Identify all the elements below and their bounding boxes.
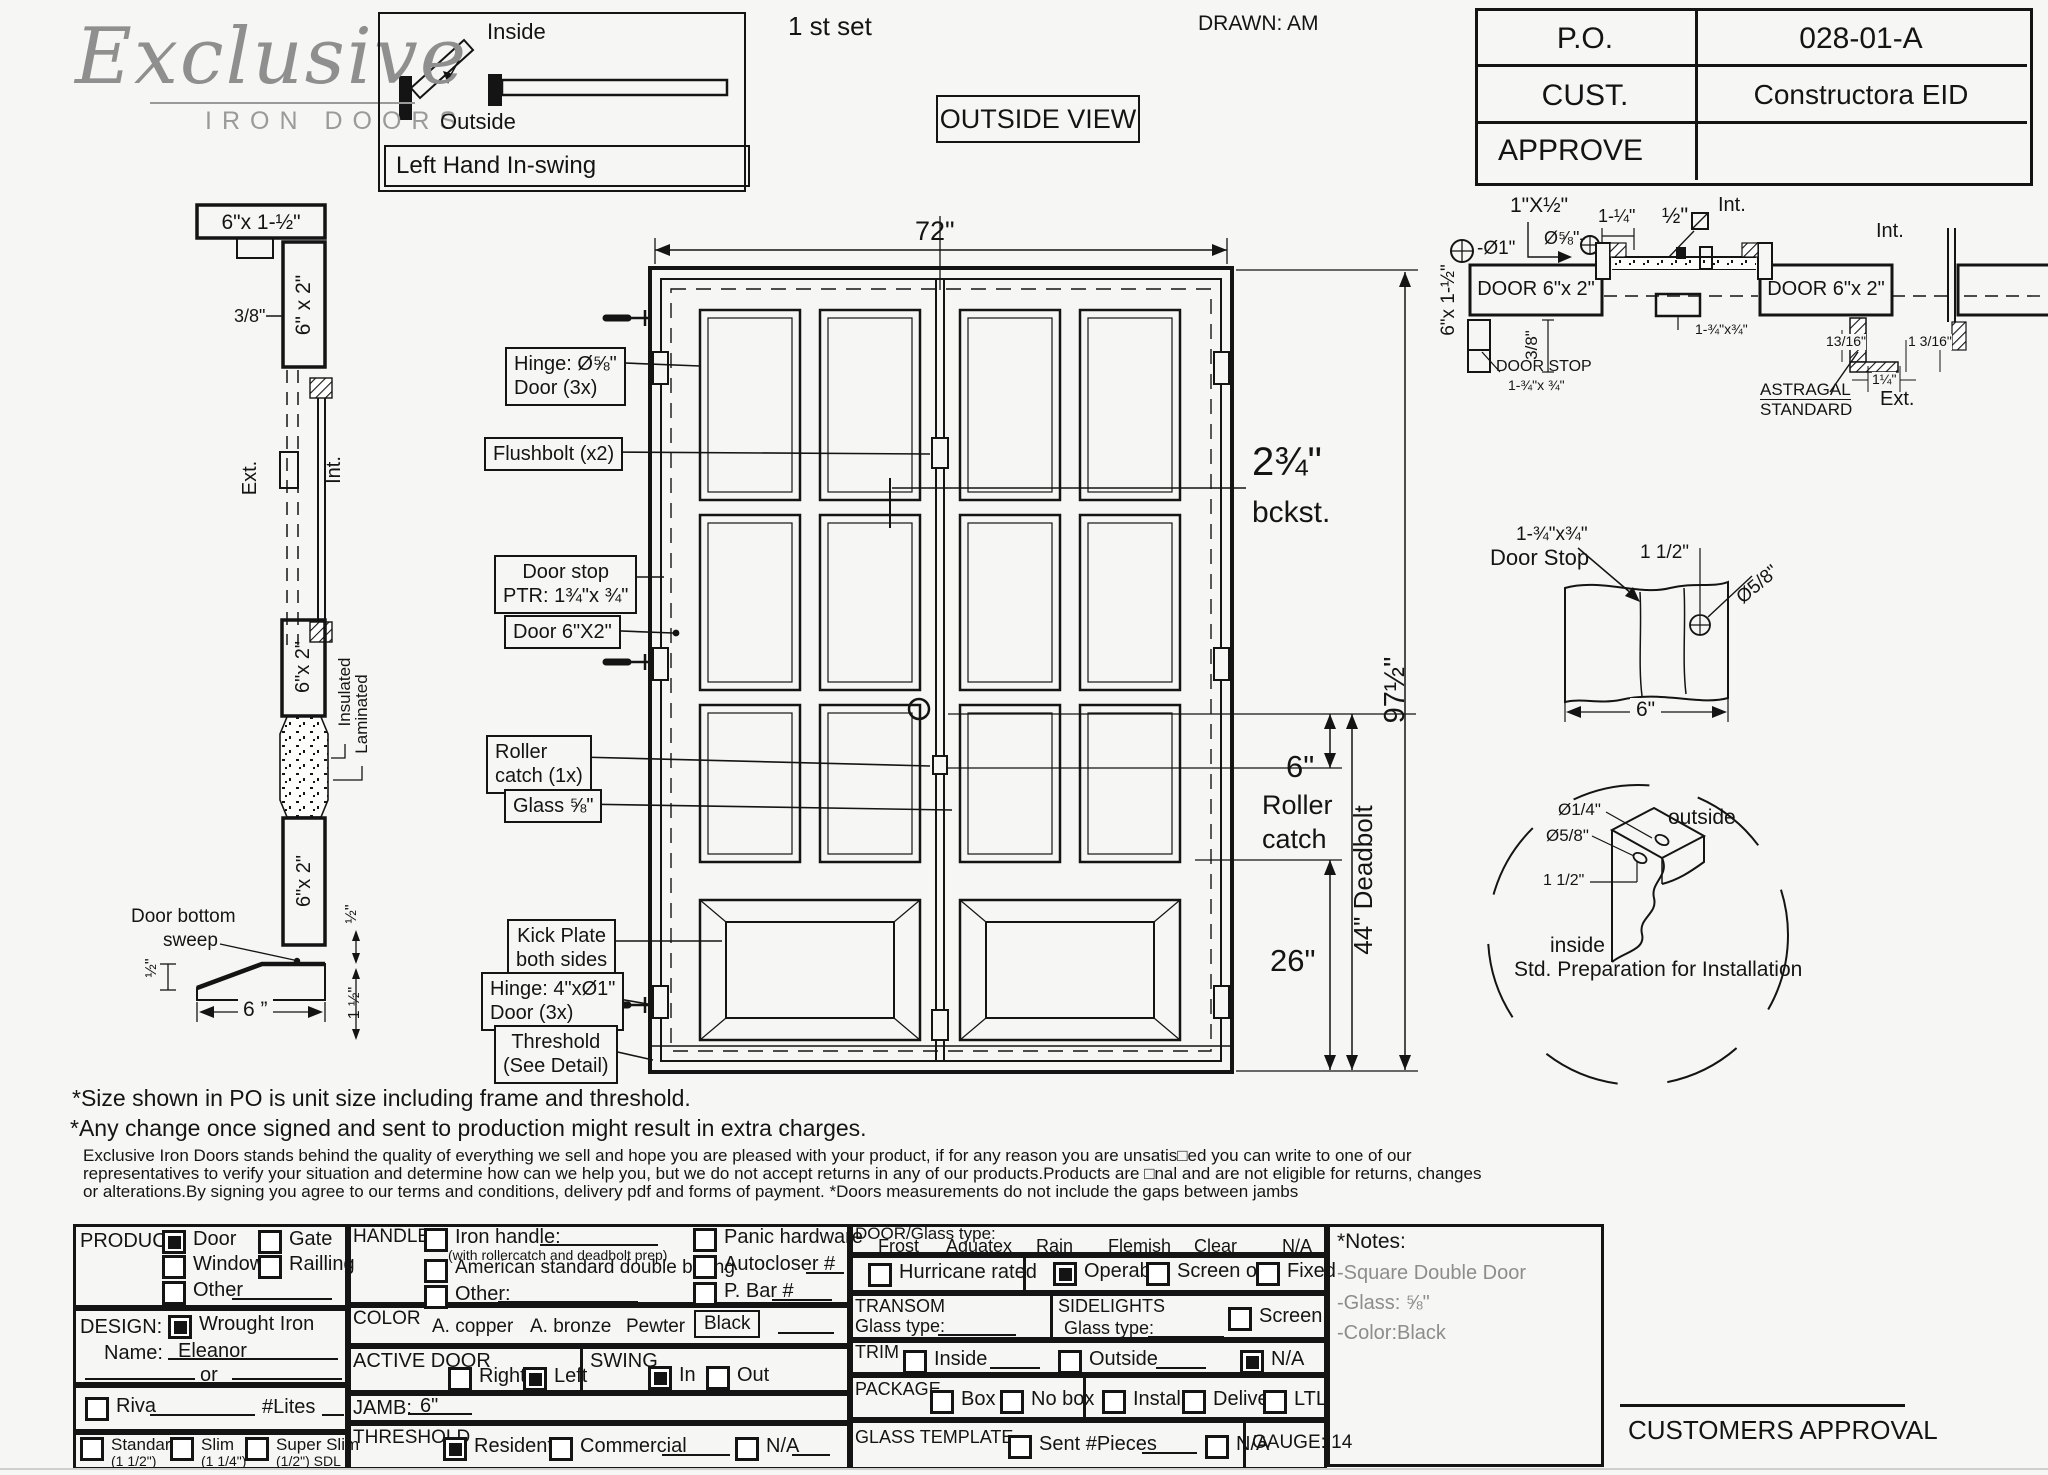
hsec-jamb-dim: 6"x 1-½" [1432,245,1466,355]
sweep-label-1: Door bottom [131,906,236,927]
customers-approval-label: CUSTOMERS APPROVAL [1628,1416,1938,1445]
int-label: Int. [319,440,349,500]
checkbox-box[interactable] [424,1228,448,1252]
po-value: 028-01-A [1695,22,2027,56]
approval-signature-line[interactable] [1620,1404,1905,1407]
checkbox-box[interactable] [424,1285,448,1309]
jamb-size-dim: 6" x 2" [285,245,323,365]
lites-blank[interactable] [322,1398,344,1416]
checkbox-box[interactable] [162,1281,186,1305]
checkbox-package-nobox[interactable]: No box [1000,1389,1094,1414]
checkbox-fixed[interactable]: Fixed [1256,1261,1336,1286]
hinge-bottom-line1: Hinge: 4"xØ1" [490,977,615,1001]
hsec-114b-dim: 1¼" [1872,372,1896,388]
gauge-label: GAUGE: 14 [1252,1432,1352,1453]
checkbox-label: Screen [1259,1306,1322,1327]
checkbox-box[interactable] [448,1367,472,1391]
checkbox-trim-outside[interactable]: Outside [1058,1349,1158,1374]
color-blank[interactable] [778,1316,834,1334]
checkbox-box[interactable] [1102,1390,1126,1414]
roller-dim: 6" [1286,750,1314,785]
trim-inside-blank[interactable] [990,1351,1040,1369]
hsec-door-left: DOOR 6"x 2" [1470,278,1602,300]
checkbox-american-boring[interactable]: American standard double boring [424,1258,735,1283]
checkbox-threshold-na[interactable]: N/A [735,1436,799,1461]
checkbox-trim-inside[interactable]: Inside [903,1349,987,1374]
handle-other-blank[interactable] [498,1285,638,1303]
prep-112: 1 1/2" [1543,872,1584,890]
checkbox-panic-hardware[interactable]: Panic hardware [693,1227,863,1252]
checkbox-label: No box [1031,1389,1094,1410]
stop-detail-width: 6" [1630,698,1661,722]
checkbox-label: Right [479,1366,526,1387]
hinge-bottom-line2: Door (3x) [490,1001,615,1025]
checkbox-label: N/A [1271,1349,1304,1370]
note-line-3: Exclusive Iron Doors stands behind the q… [83,1146,1412,1165]
or-line-left [85,1378,195,1380]
drawn-by-label: DRAWN: AM [1198,12,1319,36]
design-name-label: Name: [104,1342,163,1364]
sidelights-glass-label: Glass type: [1064,1318,1154,1338]
astragal-label-1: ASTRAGAL [1760,380,1851,400]
cust-label: CUST. [1475,79,1695,113]
height-dim: 97½" [1378,635,1412,745]
hinge-bottom-callout: Hinge: 4"xØ1" Door (3x) [481,972,624,1031]
sweep-label-2: sweep [163,930,218,951]
iron-handle-blank[interactable] [540,1228,658,1246]
threshold-na-blank[interactable] [792,1438,830,1456]
prep-dia14: Ø1/4" [1558,800,1601,819]
backset-word: bckst. [1252,496,1330,530]
checkbox-box[interactable] [1240,1350,1264,1374]
checkbox-label: Super Slim(1/2") SDL [276,1436,359,1469]
checkbox-box[interactable] [1205,1435,1229,1459]
checkbox-box[interactable] [245,1437,269,1461]
swing-outside-label: Outside [440,110,516,135]
kick-plate-callout: Kick Plate both sides [507,919,616,978]
color-label: COLOR [353,1308,421,1329]
glasstype-rain[interactable]: Rain [1036,1236,1073,1256]
jamb-label: JAMB: [353,1397,412,1419]
checkbox-box[interactable] [170,1437,194,1461]
jamb-blank[interactable] [408,1397,472,1415]
trim-outside-blank[interactable] [1156,1351,1206,1369]
package-label: PACKAGE [855,1379,941,1399]
checkbox-box[interactable] [258,1255,282,1279]
checkbox-swing-in[interactable]: In [648,1365,696,1390]
hsec-dia58-dim: Ø⅝"- [1544,228,1585,248]
notes-box [1327,1224,1604,1467]
sidelights-glass-blank[interactable] [1148,1320,1224,1338]
checkbox-hurricane[interactable]: Hurricane rated [868,1262,1037,1287]
checkbox-box[interactable] [1000,1390,1024,1414]
checkbox-box[interactable] [903,1350,927,1374]
prep-inside: inside [1550,934,1605,958]
checkbox-label: Hurricane rated [899,1262,1037,1283]
checkbox-label: Sent #Pieces [1039,1434,1157,1455]
kick-line2: both sides [516,948,607,972]
glass-callout: Glass ⅝" [504,789,602,823]
kick-dim: 26" [1270,944,1316,979]
door-stop-line1: Door stop [503,560,628,584]
checkbox-box[interactable] [735,1437,759,1461]
roller-line1: Roller [495,740,583,764]
checkbox-box[interactable] [648,1366,672,1390]
notes-title: *Notes: [1337,1230,1406,1254]
checkbox-box[interactable] [868,1263,892,1287]
checkbox-box[interactable] [80,1437,104,1461]
transom-glass-label: Glass type: [855,1316,945,1336]
checkbox-label: Railling [289,1254,355,1275]
checkbox-box[interactable] [168,1315,192,1339]
hinge-top-line1: Hinge: Ø⅝" [514,352,617,376]
checkbox-product-gate[interactable]: Gate [258,1229,332,1254]
sidelights-label: SIDELIGHTS [1058,1296,1165,1316]
door-stop-callout: Door stop PTR: 1¾"x ¾" [494,555,637,614]
swing-inside-label: Inside [487,20,546,45]
threshold-line2: (See Detail) [503,1054,609,1078]
po-table-line [1475,121,2027,124]
checkbox-box[interactable] [1058,1350,1082,1374]
note-line-5: or alterations.By signing you agree to o… [83,1182,1298,1201]
checkbox-box[interactable] [424,1259,448,1283]
hinge-top-line2: Door (3x) [514,376,617,400]
checkbox-product-railling[interactable]: Railling [258,1254,355,1279]
hsec-int-2: Int. [1876,220,1904,242]
glass-template-label: GLASS TEMPLATE [855,1427,1013,1447]
roller-line2: catch (1x) [495,764,583,788]
transom-glass-blank[interactable] [938,1318,1016,1336]
checkbox-active-right[interactable]: Right [448,1366,526,1391]
checkbox-label: Screen or [1177,1261,1264,1282]
jamb-top-dim: 6"x 1-½" [197,211,325,235]
prep-outside: outside [1668,806,1736,830]
checkbox-super-slim[interactable]: Super Slim(1/2") SDL [245,1436,359,1469]
threshold-height-dim: 1 ½" [343,973,367,1033]
lites-label: #Lites [262,1396,315,1418]
hsec-12-dim: ½" [1662,204,1688,229]
transom-label: TRANSOM [855,1296,945,1316]
checkbox-swing-out[interactable]: Out [706,1365,769,1390]
checkbox-box[interactable] [693,1282,717,1306]
stop-detail-112: 1 1/2" [1640,542,1689,563]
checkbox-label: Door [193,1229,236,1250]
hsec-mid-dim: 1-¾"x¾" [1695,322,1748,338]
checkbox-package-box[interactable]: Box [930,1389,995,1414]
checkbox-box[interactable] [1228,1307,1252,1331]
prep-dia58: Ø5/8" [1546,826,1589,845]
kick-line1: Kick Plate [516,924,607,948]
riva-blank[interactable] [150,1398,255,1416]
checkbox-label: Window [193,1254,264,1275]
checkbox-label: Gate [289,1229,332,1250]
p-bar-blank[interactable] [772,1283,832,1301]
checkbox-active-left[interactable]: Left [523,1366,587,1391]
checkbox-box[interactable] [1053,1262,1077,1286]
set-label: 1 st set [788,12,872,41]
frame-sub: (1/2") SDL [276,1454,359,1469]
checkbox-box[interactable] [1146,1262,1170,1286]
stop-detail-dim: 1-¾"x¾" [1516,524,1588,545]
checkbox-label: Install [1133,1389,1185,1410]
flushbolt-callout: Flushbolt (x2) [484,437,623,471]
glasstype-flemish[interactable]: Flemish [1108,1236,1171,1256]
checkbox-sidelights-screen[interactable]: Screen [1228,1306,1322,1331]
hsec-doorstop-label: DOOR STOP [1496,358,1592,376]
color-copper[interactable]: A. copper [432,1316,513,1337]
checkbox-label: Out [737,1365,769,1386]
checkbox-standard[interactable]: Standard(1 1/2") [80,1436,180,1469]
hinge-top-callout: Hinge: Ø⅝" Door (3x) [505,347,626,406]
checkbox-label: Panic hardware [724,1227,863,1248]
notes-item-2: -Glass: ⅝" [1337,1292,1430,1314]
laminated-label: Laminated [351,664,373,764]
hsec-114-dim: 1-¼" [1598,206,1635,226]
checkbox-box[interactable] [1008,1435,1032,1459]
hsec-int-1: Int. [1718,194,1746,216]
checkbox-screen-or[interactable]: Screen or [1146,1261,1264,1286]
design-name-blank[interactable] [168,1342,338,1360]
checkbox-trim-na[interactable]: N/A [1240,1349,1304,1374]
checkbox-box[interactable] [693,1255,717,1279]
hsec-doorstop-dim: 1-¾"x ¾" [1508,378,1565,394]
jamb-gap-dim: 3/8" [234,306,265,326]
deadbolt-dim: 44" Deadbolt [1345,790,1381,970]
or-line-right [232,1378,342,1380]
product-other-blank[interactable] [232,1282,332,1300]
checkbox-product-other[interactable]: Other [162,1280,243,1305]
checkbox-box[interactable] [162,1230,186,1254]
color-pewter[interactable]: Pewter [626,1316,685,1337]
backset-dim: 2¾" [1252,440,1322,485]
hsec-1x12-dim: 1"X½" [1510,194,1568,218]
note-line-4: representatives to verify your situation… [83,1164,1481,1183]
sweep-half-dim-b: ½" [340,894,364,934]
checkbox-box[interactable] [85,1397,109,1421]
trim-label: TRIM [855,1342,899,1362]
threshold-callout: Threshold (See Detail) [494,1025,618,1084]
glasstype-aquatex[interactable]: Aquatex [946,1236,1012,1256]
color-bronze[interactable]: A. bronze [530,1316,611,1337]
checkbox-sent-pieces[interactable]: Sent #Pieces [1008,1434,1157,1459]
installation-prep-drawing [1488,785,1788,1085]
notes-item-3: -Color:Black [1337,1322,1446,1344]
approve-label: APPROVE [1498,134,1643,168]
checkbox-label: Box [961,1389,995,1410]
roller-catch-callout: Roller catch (1x) [486,735,592,794]
checkbox-label: Outside [1089,1349,1158,1370]
swing-caption: Left Hand In-swing [384,145,750,187]
prep-caption: Std. Preparation for Installation [1514,958,1802,982]
stop-detail-title: Door Stop [1490,546,1589,571]
checkbox-box[interactable] [706,1366,730,1390]
sweep-half-dim: ½" [140,948,164,988]
transom-divider [1050,1293,1053,1340]
frame-label: Slim [201,1435,234,1454]
door-dim-a: 6"x 2" [284,617,322,717]
checkbox-label: Inside [934,1349,987,1370]
hsec-1316-b: 1 3/16" [1908,334,1952,350]
outside-view-label: OUTSIDE VIEW [936,95,1140,143]
handle-label: HANDLE [353,1226,430,1247]
checkbox-package-ltl[interactable]: LTL [1263,1389,1327,1414]
cust-value: Constructora EID [1695,79,2027,110]
threshold-line1: Threshold [503,1030,609,1054]
checkbox-label: In [679,1365,696,1386]
ext-label: Ext. [235,448,265,508]
color-selected[interactable]: Black [694,1310,760,1338]
threshold-width-dim: 6 ” [238,998,273,1022]
frame-sub: (1 1/4") [201,1454,246,1469]
width-dim: 72" [915,216,955,246]
checkbox-product-window[interactable]: Window [162,1254,264,1279]
door-size-callout: Door 6"X2" [504,615,621,649]
roller-word-2: catch [1262,824,1327,854]
checkbox-box[interactable] [162,1255,186,1279]
astragal-label-2: STANDARD [1760,400,1852,419]
glasstype-frost[interactable]: Frost [878,1236,919,1256]
notes-item-1: -Square Double Door [1337,1262,1526,1284]
roller-word-1: Roller [1262,790,1333,820]
door-stop-detail-drawing [1565,548,1752,722]
checkbox-box[interactable] [1263,1390,1287,1414]
glasstype-na[interactable]: N/A [1282,1236,1312,1256]
page-bottom-edge [0,1468,2048,1470]
sent-pieces-blank[interactable] [1142,1436,1197,1454]
design-label: DESIGN: [80,1316,162,1338]
door-shop-drawing: Exclusive IRON DOORS Inside Outside Left… [0,0,2048,1475]
hsec-dia1-dim: -Ø1" [1477,238,1515,259]
autocloser-blank[interactable] [806,1256,844,1274]
hsec-door-right: DOOR 6"x 2" [1760,278,1892,300]
checkbox-box[interactable] [443,1437,467,1461]
checkbox-product-door[interactable]: Door [162,1229,236,1254]
door-stop-line2: PTR: 1¾"x ¾" [503,584,628,608]
checkbox-box[interactable] [258,1230,282,1254]
checkbox-label: LTL [1294,1389,1327,1410]
checkbox-riva[interactable]: Riva [85,1396,156,1421]
checkbox-label: Fixed [1287,1261,1336,1282]
door-dim-b: 6"x 2" [285,831,323,931]
checkbox-box[interactable] [1182,1390,1206,1414]
frame-label: Super Slim [276,1435,359,1454]
checkbox-design-wrought-iron[interactable]: Wrought Iron [168,1314,314,1339]
glasstype-clear[interactable]: Clear [1194,1236,1237,1256]
checkbox-package-install[interactable]: Install [1102,1389,1185,1414]
checkbox-label: Wrought Iron [199,1314,314,1335]
commercial-blank[interactable] [662,1438,730,1456]
note-line-2: *Any change once signed and sent to prod… [70,1116,867,1142]
checkbox-box[interactable] [523,1367,547,1391]
po-table-line [1475,64,2027,67]
checkbox-box[interactable] [693,1228,717,1252]
checkbox-box[interactable] [1256,1262,1280,1286]
design-or-label: or [200,1364,218,1386]
hsec-ext-label: Ext. [1880,388,1914,410]
checkbox-box[interactable] [930,1390,954,1414]
checkbox-label: Left [554,1366,587,1387]
checkbox-label: Slim(1 1/4") [201,1436,246,1469]
checkbox-box[interactable] [549,1437,573,1461]
hsec-1316-a: 13/16" [1826,334,1866,350]
note-line-1: *Size shown in PO is unit size including… [72,1086,691,1112]
logo-underline [150,102,415,104]
checkbox-slim[interactable]: Slim(1 1/4") [170,1436,246,1469]
po-label: P.O. [1475,22,1695,56]
